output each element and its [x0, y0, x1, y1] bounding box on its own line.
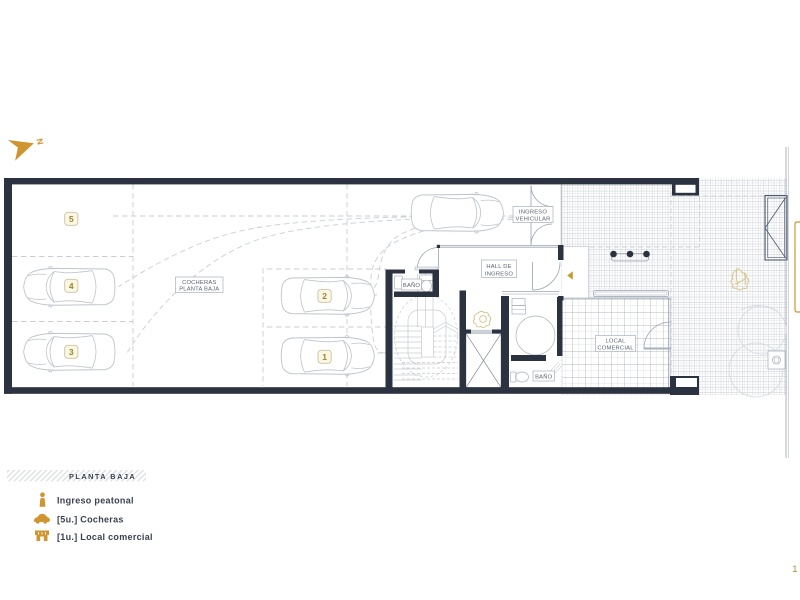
svg-text:N: N — [35, 137, 46, 145]
svg-text:PLANTA BAJA: PLANTA BAJA — [69, 472, 136, 481]
svg-text:COMERCIAL: COMERCIAL — [597, 346, 634, 352]
svg-text:COCHERAS: COCHERAS — [182, 280, 216, 286]
svg-text:BAÑO: BAÑO — [535, 374, 553, 381]
svg-text:5: 5 — [69, 214, 74, 224]
svg-text:VEHICULAR: VEHICULAR — [516, 217, 551, 223]
svg-text:HALL DE: HALL DE — [486, 264, 511, 270]
svg-text:INGRESO: INGRESO — [485, 271, 513, 277]
svg-text:INGRESO: INGRESO — [519, 210, 547, 216]
svg-text:4: 4 — [69, 281, 74, 291]
svg-text:[1u.] Local comercial: [1u.] Local comercial — [57, 532, 153, 542]
svg-text:BAÑO: BAÑO — [403, 282, 421, 289]
svg-text:3: 3 — [69, 347, 74, 357]
svg-text:PLANTA BAJA: PLANTA BAJA — [179, 287, 219, 293]
svg-text:1: 1 — [792, 564, 797, 575]
svg-text:Ingreso peatonal: Ingreso peatonal — [57, 496, 134, 506]
svg-text:1: 1 — [322, 352, 327, 362]
svg-text:LOCAL: LOCAL — [605, 339, 626, 345]
svg-text:2: 2 — [322, 291, 327, 301]
svg-text:[5u.] Cocheras: [5u.] Cocheras — [57, 514, 124, 524]
